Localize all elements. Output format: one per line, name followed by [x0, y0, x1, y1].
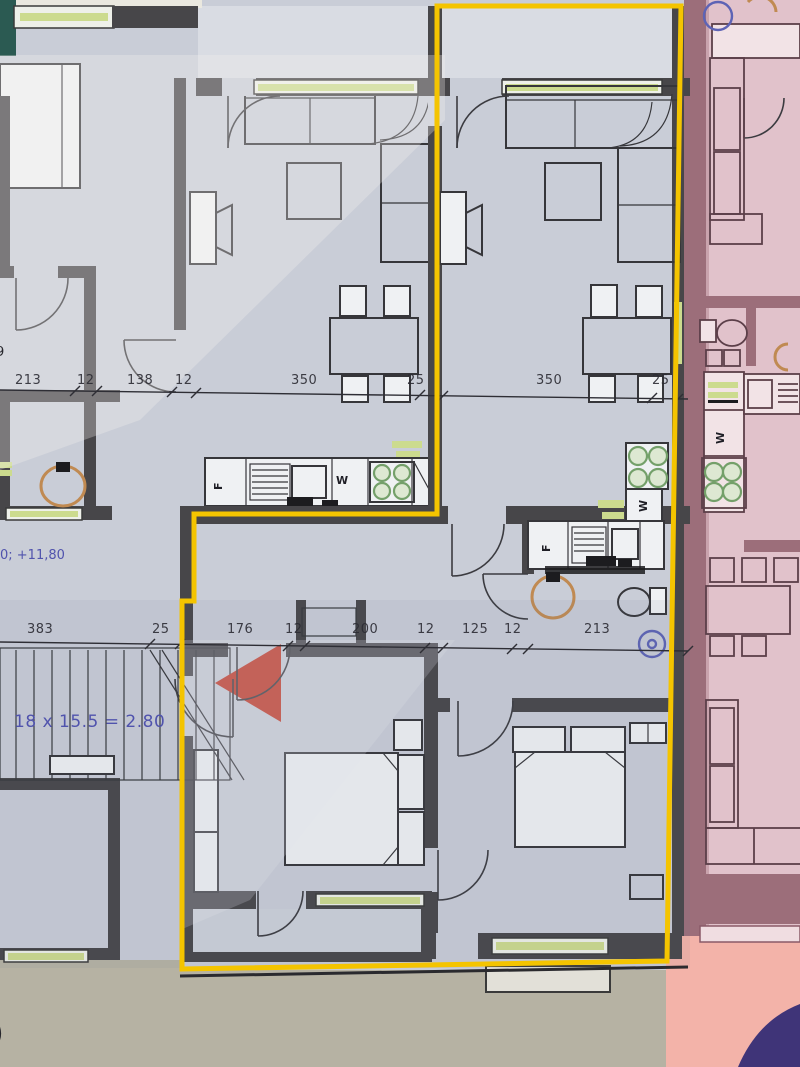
tv-stand-highlighted [440, 192, 466, 264]
washer-highlighted [626, 489, 662, 521]
floor-plan-photo: 0; +11,80 18 x 15.5 = 2.80 9 ) 213121381… [0, 0, 800, 1067]
floor-plan-drawing [0, 0, 800, 1067]
window-sill-pink [700, 926, 800, 942]
